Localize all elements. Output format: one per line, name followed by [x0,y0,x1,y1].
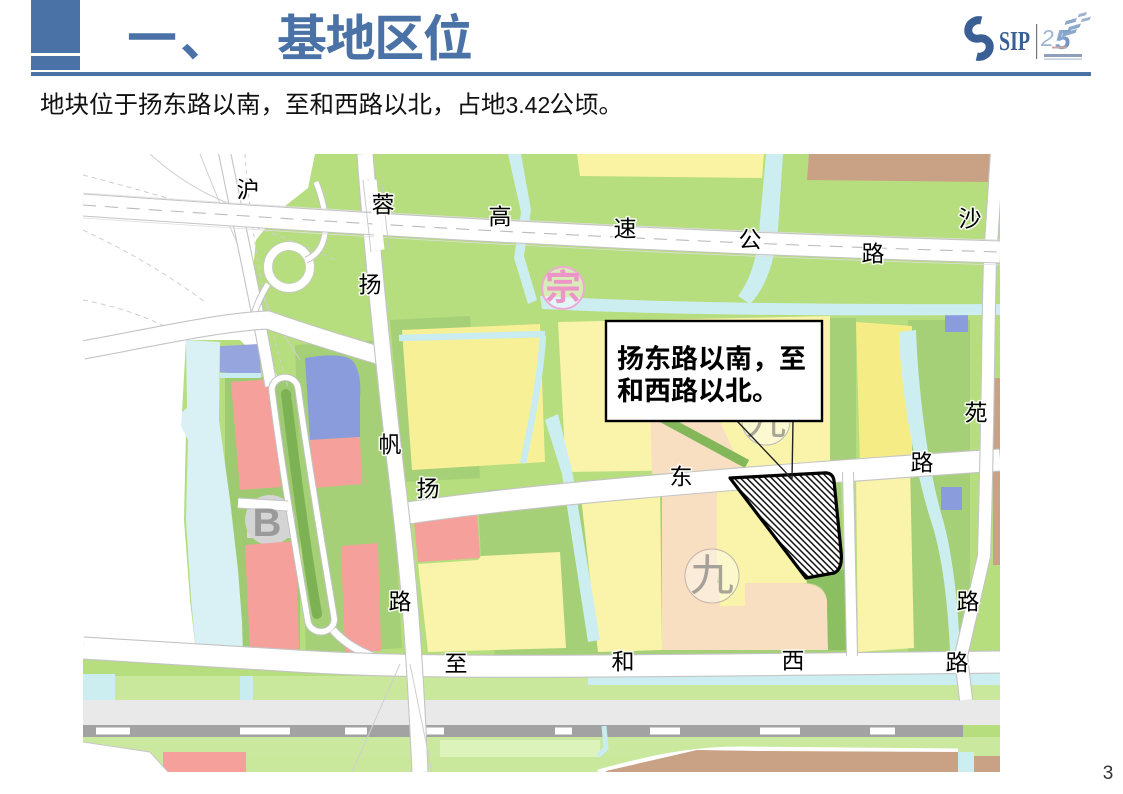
svg-text:2: 2 [1040,25,1054,51]
svg-text:3.42: 3.42 [506,92,551,118]
svg-text:3: 3 [1103,763,1114,784]
svg-text:SIP: SIP [999,26,1030,56]
svg-text:B: B [253,501,282,545]
